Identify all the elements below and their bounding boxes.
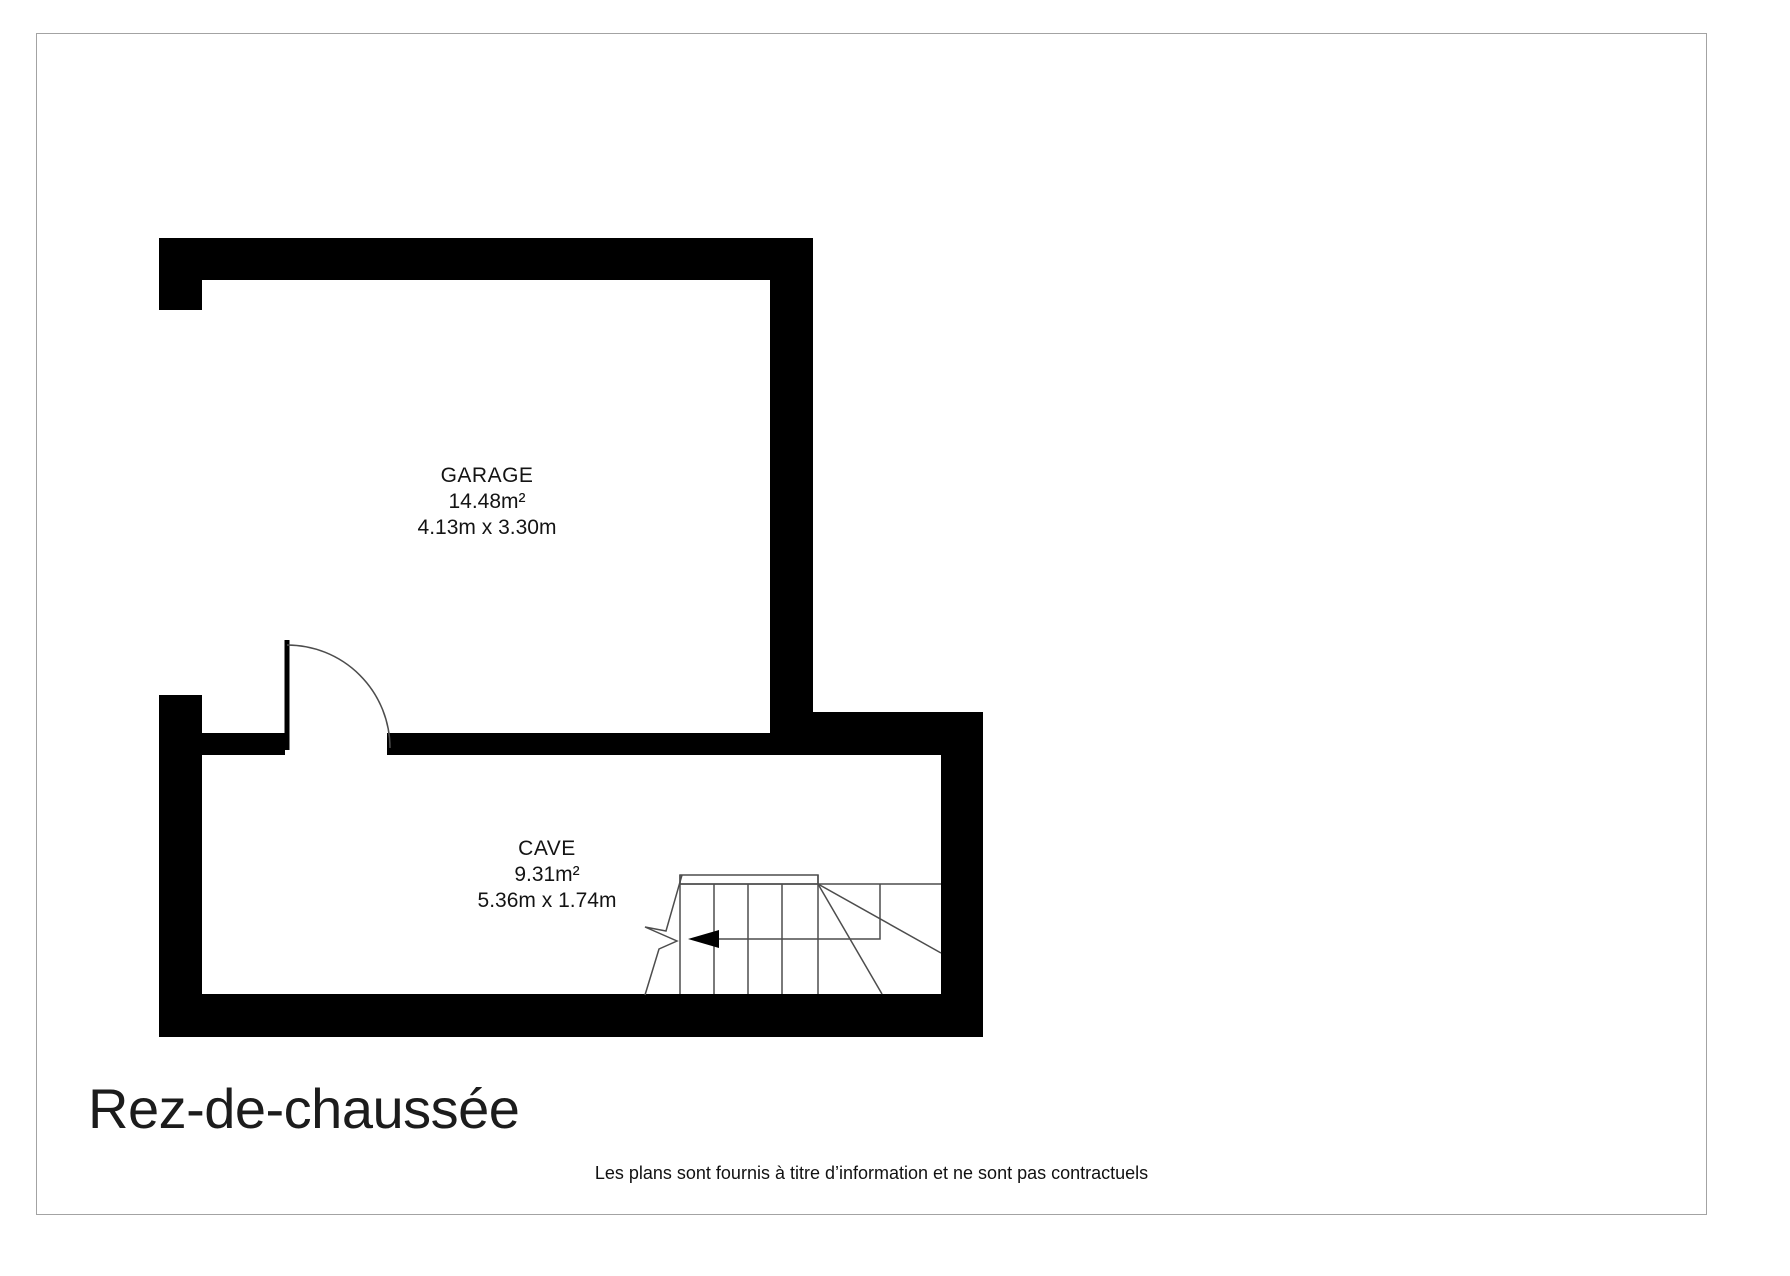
garage-top-left-wall-stub <box>159 238 202 310</box>
room-name: CAVE <box>478 836 617 862</box>
garage-label: GARAGE 14.48m² 4.13m x 3.30m <box>418 463 557 541</box>
stair-direction-arrow <box>688 930 719 948</box>
bottom-exterior-wall <box>159 994 983 1037</box>
room-dimensions: 4.13m x 3.30m <box>418 515 557 541</box>
page: GARAGE 14.48m² 4.13m x 3.30m CAVE 9.31m²… <box>0 0 1790 1276</box>
door-swing-arc <box>287 645 390 748</box>
partition-wall-left-of-door <box>202 733 285 755</box>
garage-right-wall <box>770 238 813 755</box>
room-name: GARAGE <box>418 463 557 489</box>
room-area: 14.48m² <box>418 489 557 515</box>
left-exterior-wall <box>159 695 202 1037</box>
stair-top-nosing <box>680 875 818 884</box>
cave-right-wall <box>941 712 983 1037</box>
room-dimensions: 5.36m x 1.74m <box>478 888 617 914</box>
stair-break-line <box>645 875 682 995</box>
stair-walk-line <box>717 884 880 939</box>
garage-top-wall <box>159 238 813 280</box>
room-area: 9.31m² <box>478 862 617 888</box>
cave-label: CAVE 9.31m² 5.36m x 1.74m <box>478 836 617 914</box>
floor-title: Rez-de-chaussée <box>88 1078 519 1140</box>
disclaimer-text: Les plans sont fournis à titre d’informa… <box>36 1163 1707 1184</box>
